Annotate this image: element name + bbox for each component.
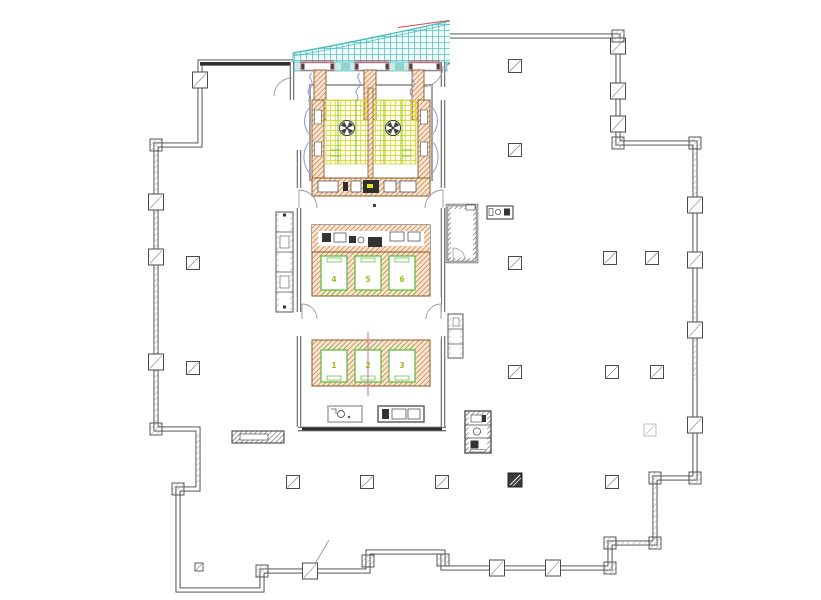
elevator-label-1: 1 bbox=[331, 361, 336, 370]
corridor-dot-fixture bbox=[373, 204, 376, 207]
right-wall-hatch-1 bbox=[693, 150, 698, 198]
lobby-floor bbox=[302, 297, 441, 339]
wall-column-marker bbox=[193, 72, 208, 88]
corner-block bbox=[604, 562, 616, 574]
wall-column-marker bbox=[611, 83, 626, 99]
corner-block bbox=[689, 472, 701, 484]
right-small-room bbox=[447, 205, 477, 262]
pier-side-curve bbox=[432, 108, 438, 174]
column-marker bbox=[509, 144, 522, 157]
wall-column-marker bbox=[303, 563, 318, 579]
elevator-lobby bbox=[302, 297, 441, 339]
column-marker bbox=[187, 362, 200, 375]
wall-column-marker bbox=[546, 560, 561, 576]
machine-niche bbox=[351, 181, 361, 192]
wall-column-marker bbox=[490, 560, 505, 576]
service-fixture bbox=[408, 232, 420, 241]
service-room-band bbox=[312, 204, 430, 252]
column-marker bbox=[509, 257, 522, 270]
right-lower-shaft bbox=[448, 314, 463, 358]
escalator-hall bbox=[310, 70, 432, 196]
center-divider bbox=[368, 88, 373, 180]
elevator-bank-upper bbox=[312, 252, 430, 296]
machine-niche bbox=[400, 181, 416, 192]
column-marker bbox=[436, 476, 449, 489]
corner-block bbox=[689, 137, 701, 149]
corner-block bbox=[362, 555, 374, 567]
light-column-marker bbox=[644, 424, 656, 436]
corner-block bbox=[256, 565, 268, 577]
corner-block bbox=[649, 537, 661, 549]
wall-column-marker bbox=[149, 249, 164, 265]
corner-block bbox=[150, 139, 162, 151]
left-duct-shaft bbox=[276, 212, 293, 312]
machine-yellow-mark bbox=[367, 184, 373, 188]
corner-block bbox=[604, 537, 616, 549]
elevator-label-4: 4 bbox=[331, 275, 336, 284]
service-fixture bbox=[390, 232, 404, 241]
column-marker bbox=[509, 366, 522, 379]
mullion-block-2 bbox=[395, 63, 404, 70]
elevator-label-6: 6 bbox=[399, 275, 404, 284]
column-marker bbox=[606, 476, 619, 489]
right-wall-hatch-2 bbox=[693, 300, 698, 380]
column-marker bbox=[646, 252, 659, 265]
corner-block bbox=[150, 423, 162, 435]
elevator-bank-lower bbox=[312, 332, 430, 396]
service-fixture-dark bbox=[322, 233, 331, 242]
fixture-box-rects bbox=[378, 406, 424, 422]
mullion-block-1 bbox=[341, 63, 350, 70]
machine-niche bbox=[384, 181, 396, 192]
column-marker bbox=[604, 252, 617, 265]
wall-column-marker bbox=[149, 354, 164, 370]
column-marker bbox=[651, 366, 664, 379]
floor-plan-canvas: 4 5 6 1 2 3 bbox=[0, 0, 821, 600]
column-marker bbox=[509, 60, 522, 73]
fan-symbol-icon bbox=[386, 121, 401, 136]
pier-niche bbox=[421, 110, 428, 124]
pier-niche bbox=[315, 110, 322, 124]
wall-column-marker bbox=[688, 322, 703, 338]
entrance-band bbox=[291, 61, 447, 71]
wall-column-marker bbox=[688, 417, 703, 433]
corner-block bbox=[172, 483, 184, 495]
left-wall-hatch bbox=[154, 150, 159, 425]
wall-column-marker bbox=[149, 194, 164, 210]
bottom-small-shaft bbox=[465, 411, 491, 453]
wall-column-marker bbox=[611, 116, 626, 132]
wall-column-marker bbox=[688, 197, 703, 213]
service-fixture-dark bbox=[368, 237, 382, 247]
column-marker bbox=[287, 476, 300, 489]
column-marker bbox=[606, 366, 619, 379]
column-marker bbox=[361, 476, 374, 489]
corner-block bbox=[649, 472, 661, 484]
service-fixture bbox=[334, 233, 346, 242]
pier-niche bbox=[421, 142, 428, 156]
machine-niche bbox=[318, 181, 338, 192]
column-marker bbox=[187, 257, 200, 270]
se-step-wall-hatch bbox=[612, 541, 653, 546]
sw-wing-wall-hatch bbox=[196, 432, 201, 486]
floor-plan-drawing: 4 5 6 1 2 3 bbox=[0, 0, 821, 600]
corner-block bbox=[612, 30, 624, 42]
corner-block bbox=[437, 554, 449, 566]
wall-column-marker bbox=[688, 252, 703, 268]
dark-column-marker bbox=[508, 473, 522, 487]
corner-block bbox=[612, 137, 624, 149]
fan-symbol-icon bbox=[340, 121, 355, 136]
mini-column-marker bbox=[195, 563, 203, 571]
service-wall-left bbox=[312, 225, 318, 252]
elevator-label-5: 5 bbox=[365, 275, 370, 284]
se-step-wall-hatch-2 bbox=[653, 481, 658, 540]
service-wall-top bbox=[312, 225, 430, 231]
entrance-canopy bbox=[290, 18, 452, 64]
elevator-label-3: 3 bbox=[399, 361, 404, 370]
below-core-fixtures bbox=[232, 406, 424, 443]
door-swing-arc bbox=[274, 78, 292, 96]
fixture-box-round bbox=[328, 406, 362, 422]
service-fixture-dark bbox=[349, 236, 356, 243]
pier-niche bbox=[315, 142, 322, 156]
elevator-label-2: 2 bbox=[365, 361, 370, 370]
pier-side-curve bbox=[304, 108, 310, 174]
service-wall-right bbox=[424, 225, 430, 252]
right-meter-fixture bbox=[487, 206, 513, 219]
dark-hatched-bar bbox=[232, 431, 284, 443]
machine-dark-unit bbox=[343, 182, 348, 191]
